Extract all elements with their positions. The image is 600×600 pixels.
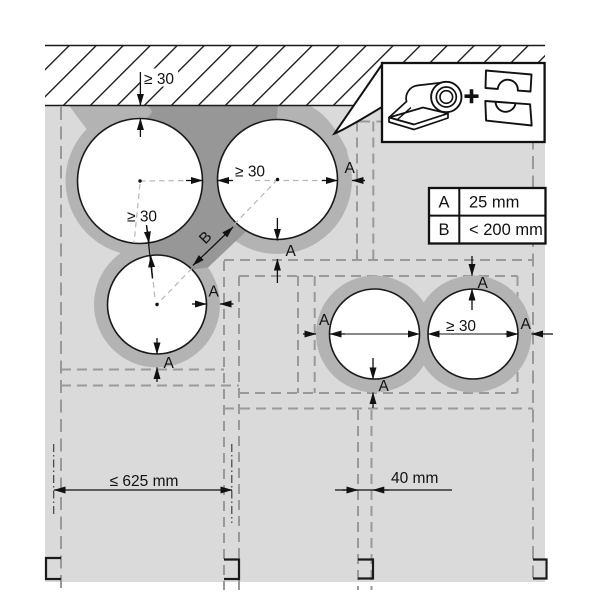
svg-text:A: A <box>209 284 220 301</box>
svg-text:A: A <box>478 275 489 292</box>
svg-text:25 mm: 25 mm <box>469 194 519 212</box>
svg-text:B: B <box>438 221 449 239</box>
svg-text:A: A <box>438 194 449 212</box>
svg-text:A: A <box>319 312 330 329</box>
svg-text:40 mm: 40 mm <box>391 470 438 487</box>
svg-text:A: A <box>521 316 532 333</box>
svg-text:≥ 30: ≥ 30 <box>235 164 265 181</box>
svg-text:≥ 30: ≥ 30 <box>446 318 476 335</box>
svg-text:≥ 30: ≥ 30 <box>144 71 174 88</box>
svg-text:≤ 625 mm: ≤ 625 mm <box>110 473 179 490</box>
svg-text:A: A <box>286 243 297 260</box>
svg-text:A: A <box>164 355 175 372</box>
svg-text:A: A <box>345 160 356 177</box>
svg-text:< 200 mm: < 200 mm <box>469 221 543 239</box>
svg-text:≥ 30: ≥ 30 <box>127 209 157 226</box>
svg-text:A: A <box>379 378 390 395</box>
